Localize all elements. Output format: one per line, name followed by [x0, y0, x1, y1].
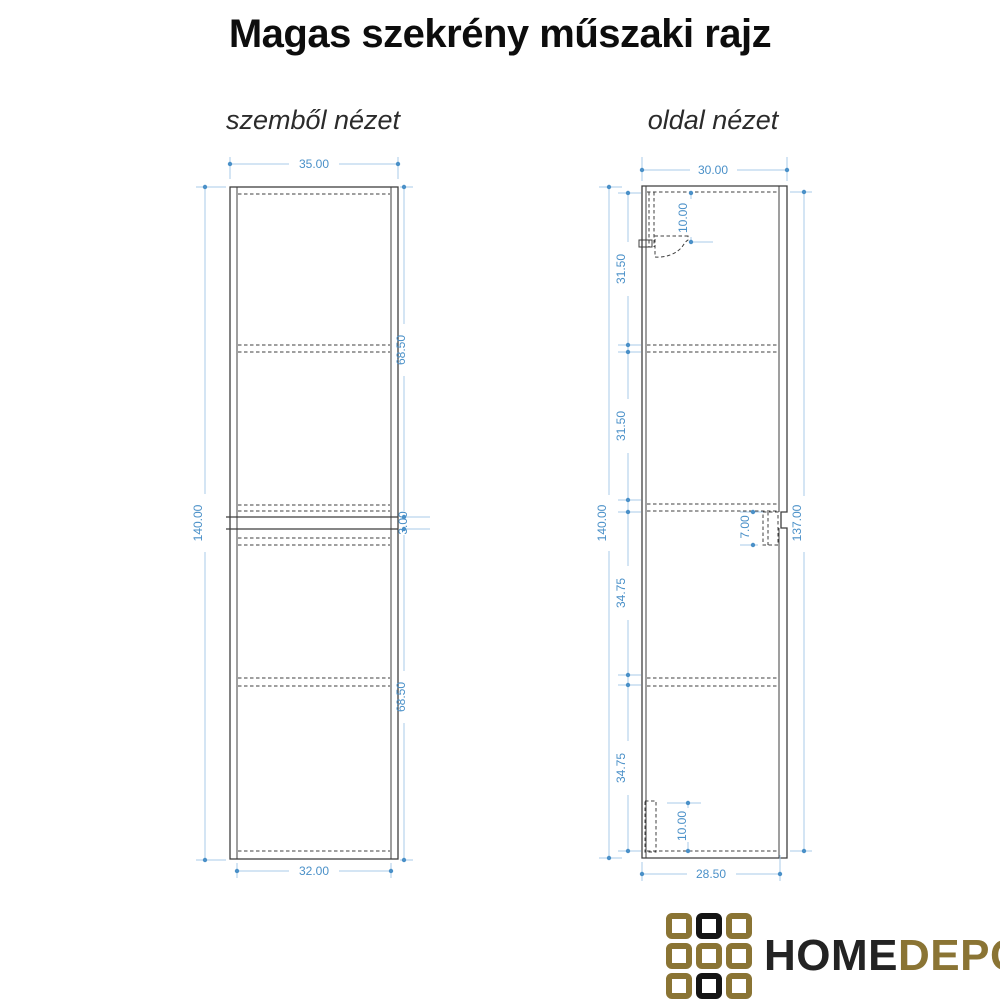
front-dim-outer-height: 140.00 — [191, 504, 205, 541]
logo-grid-cell — [726, 973, 752, 999]
side-dim-section-3: 34.75 — [614, 578, 628, 608]
logo-text-home: HOME — [764, 931, 898, 980]
logo-grid-cell — [696, 973, 722, 999]
side-dim-body-depth: 28.50 — [696, 867, 726, 881]
side-dim-section-2: 31.50 — [614, 411, 628, 441]
side-dim-top-bracket: 10.00 — [676, 203, 690, 233]
logo-text-depo: DEPO — [898, 931, 1000, 980]
logo-grid-cell — [726, 943, 752, 969]
side-cabinet-outline — [639, 186, 787, 858]
logo-grid-cell — [666, 973, 692, 999]
logo-grid-cell — [666, 913, 692, 939]
technical-drawing: 35.00 140.00 68.50 3.00 68.50 32.00 — [0, 0, 1000, 1000]
side-shelf-lines — [645, 192, 779, 852]
front-dim-inner-width: 32.00 — [299, 864, 329, 878]
top-hanging-bracket — [655, 236, 688, 257]
side-dimension-lines — [599, 157, 812, 881]
side-dim-front-panel-height: 137.00 — [790, 504, 804, 541]
logo-grid-cell — [666, 943, 692, 969]
side-dim-outer-depth: 30.00 — [698, 163, 728, 177]
front-dim-door-gap: 3.00 — [396, 511, 410, 535]
homedepo-logo-icon — [666, 913, 752, 999]
side-dimension-markers — [607, 168, 806, 876]
front-cabinet-outline — [226, 187, 398, 859]
front-dim-outer-width: 35.00 — [299, 157, 329, 171]
bottom-bracket — [645, 801, 656, 852]
front-shelf-lines — [238, 194, 390, 851]
front-dim-upper-door: 68.50 — [394, 335, 408, 365]
side-dim-mid-bracket: 7.00 — [738, 515, 752, 539]
side-dimension-labels: 30.00 140.00 31.50 31.50 34.75 34.75 137… — [595, 163, 804, 881]
side-dim-outer-height: 140.00 — [595, 504, 609, 541]
side-dim-section-1: 31.50 — [614, 254, 628, 284]
side-dim-section-4: 34.75 — [614, 753, 628, 783]
logo-grid-cell — [726, 913, 752, 939]
front-dim-lower-door: 68.50 — [394, 682, 408, 712]
side-dim-bottom-bracket: 10.00 — [675, 811, 689, 841]
homedepo-logo-text: HOMEDEPO — [764, 931, 1000, 981]
logo-grid-cell — [696, 913, 722, 939]
mid-fixing-bracket — [763, 512, 778, 545]
homedepo-logo: HOMEDEPO — [666, 912, 1000, 1000]
logo-grid-cell — [696, 943, 722, 969]
